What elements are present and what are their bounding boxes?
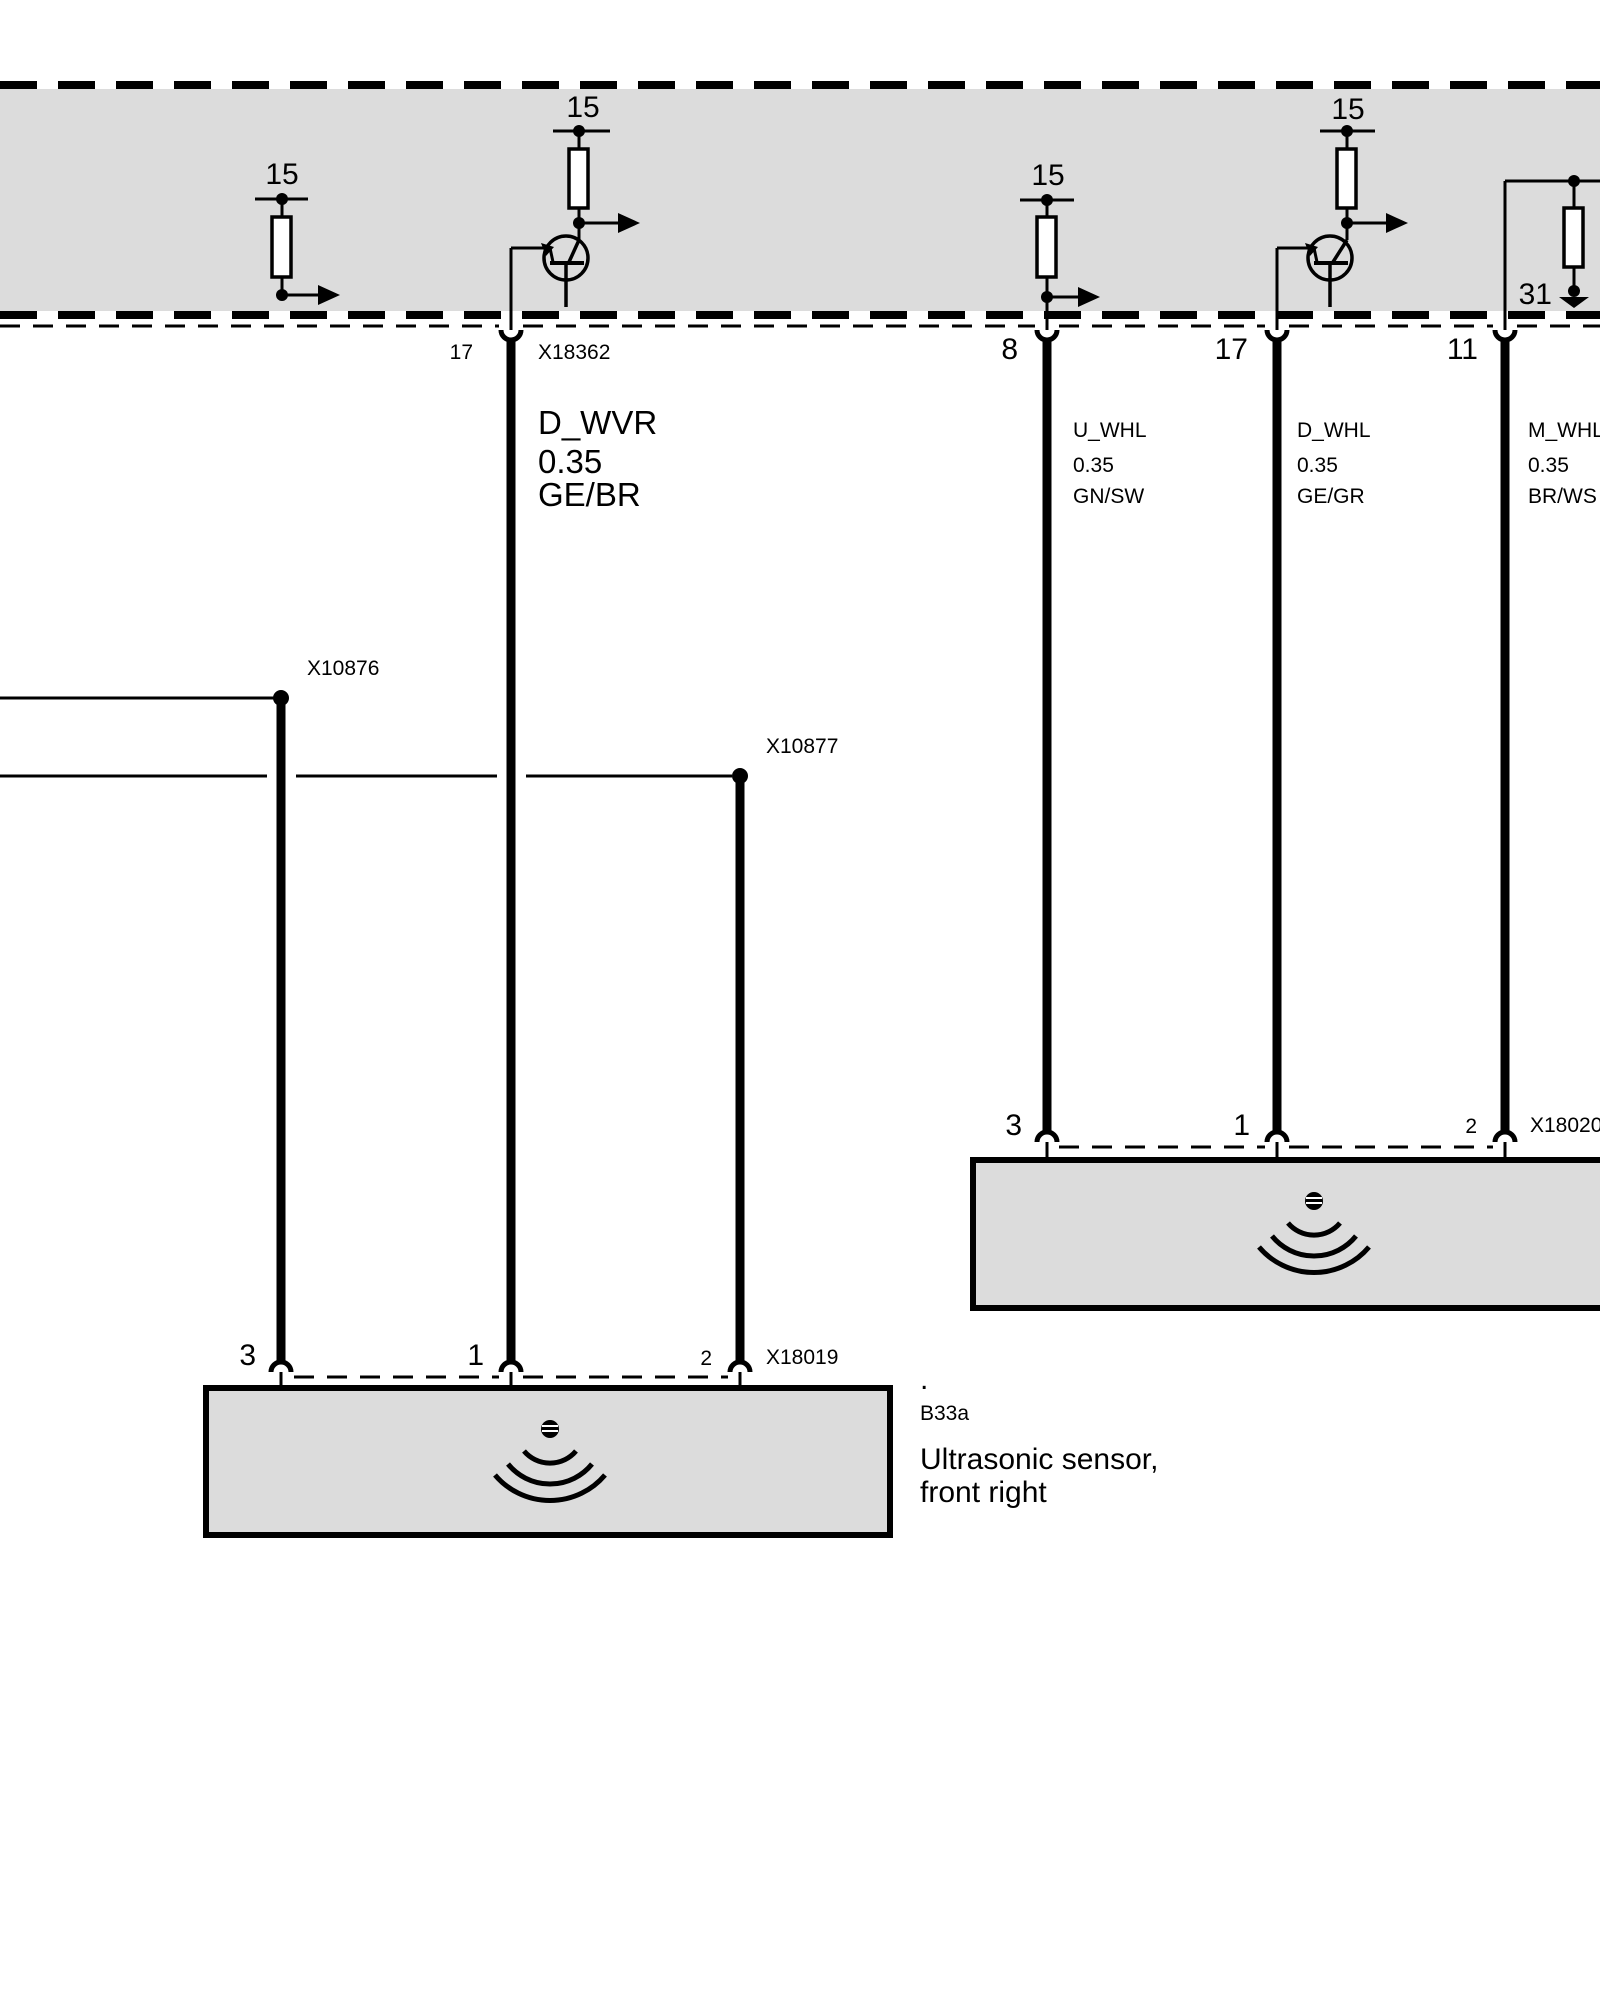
wire-size-label: 0.35 [1297, 455, 1338, 477]
pin-number-11: 11 [1428, 334, 1478, 366]
pin-cup-left-1 [501, 1362, 521, 1386]
diagram-geometry [0, 0, 1600, 2000]
pin-cup-x18362-17 [501, 318, 521, 340]
wire-color-label: GN/SW [1073, 486, 1144, 508]
pin-cup-right-1 [1267, 1132, 1287, 1158]
resistor-symbol [1337, 149, 1356, 208]
wire-size-label: 0.35 [1528, 455, 1569, 477]
wire-signal-label: U_WHL [1073, 420, 1147, 442]
pin-cup-17 [1267, 318, 1287, 340]
wire-signal-label: M_WHL [1528, 420, 1600, 442]
pin-number-8: 8 [968, 334, 1018, 366]
component-ref-b33a[interactable]: B33a [920, 1403, 969, 1425]
wire-size-label: 0.35 [1073, 455, 1114, 477]
pin-cup-11 [1495, 318, 1515, 340]
connector-id-x18362[interactable]: X18362 [538, 342, 610, 364]
sensor-box[interactable] [973, 1160, 1600, 1308]
wire-signal-label: D_WVR [538, 406, 657, 441]
ultrasonic-sensor-box-right[interactable] [973, 1160, 1600, 1308]
connector-id-x18019[interactable]: X18019 [766, 1347, 838, 1369]
pin-number-17: 17 [1198, 334, 1248, 366]
splice-network [0, 690, 748, 784]
pin-number-17-x18362: 17 [423, 342, 473, 364]
wire-color-label: GE/BR [538, 478, 641, 513]
terminal-15-label: 15 [1308, 94, 1388, 126]
resistor-symbol [272, 217, 291, 277]
pin-number-2-right: 2 [1427, 1116, 1477, 1138]
connector-id-x10876[interactable]: X10876 [307, 658, 379, 680]
pin-cup-left-2 [730, 1362, 750, 1386]
resistor-symbol [569, 149, 588, 208]
wire-color-label: GE/GR [1297, 486, 1365, 508]
ultrasonic-sensor-box-left[interactable] [206, 1388, 890, 1535]
terminal-31-label: 31 [1472, 279, 1552, 311]
connector-id-x18020[interactable]: X18020 [1530, 1115, 1600, 1137]
resistor-symbol [1564, 208, 1583, 267]
wire-color-label: BR/WS [1528, 486, 1597, 508]
component-name-line2: front right [920, 1477, 1047, 1509]
pin-number-1-left: 1 [434, 1340, 484, 1372]
pin-number-3-right: 3 [972, 1110, 1022, 1142]
terminal-15-label: 15 [1008, 160, 1088, 192]
wire-signal-label: D_WHL [1297, 420, 1371, 442]
splice-dot-x10877 [732, 768, 748, 784]
component-name-line1: Ultrasonic sensor, [920, 1444, 1158, 1476]
terminal-15-label: 15 [242, 159, 322, 191]
connector-id-x10877[interactable]: X10877 [766, 736, 838, 758]
wiring-diagram-page: 15 15 15 15 31 17 X18362 8 17 11 D_WVR 0… [0, 0, 1600, 2000]
pin-cup-8 [1037, 318, 1057, 340]
pin-number-2-left: 2 [662, 1348, 712, 1370]
splice-dot-x10876 [273, 690, 289, 706]
pin-cup-right-2 [1495, 1132, 1515, 1158]
terminal-15-label: 15 [543, 92, 623, 124]
wire-size-label: 0.35 [538, 445, 602, 480]
pin-number-1-right: 1 [1200, 1110, 1250, 1142]
resistor-symbol [1037, 217, 1056, 277]
pin-cup-right-3 [1037, 1132, 1057, 1158]
pin-cup-left-3 [271, 1362, 291, 1386]
component-dot: . [920, 1364, 928, 1396]
pin-number-3-left: 3 [206, 1340, 256, 1372]
